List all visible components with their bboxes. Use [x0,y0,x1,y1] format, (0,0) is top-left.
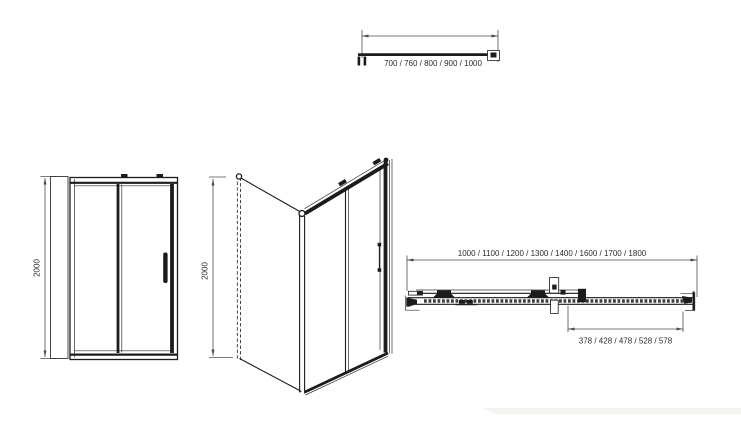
arrow-up-icon [44,178,47,185]
left-wall-profile [406,291,423,310]
roller [372,158,381,165]
door-plan-view: 1000 / 1100 / 1200 / 1300 / 1400 / 1600 … [398,238,705,356]
profile-fill [406,298,417,307]
side-panel-edge [51,177,69,359]
side-panel-plan-view: 700 / 760 / 800 / 900 / 1000 [340,18,520,78]
roller-carriage [433,290,456,298]
door-handle [163,253,167,284]
track-assembly [406,278,695,314]
arrow-right-icon [677,328,684,331]
outer-frame [70,178,178,360]
dimension-lines [362,30,498,62]
end-profile-core [491,53,497,58]
handle-inner [551,300,559,313]
handle-knob [378,243,382,247]
bottom-rail-line [306,356,389,395]
watermark-strip [482,408,741,414]
roller-cover [121,174,163,177]
perspective-view: 2000 [195,145,400,405]
stop-block [561,290,566,295]
roller-carriage [527,290,550,298]
bottom-rail [305,353,388,392]
arrow-down-icon [212,350,215,357]
wall-profile-leg [358,57,361,66]
entry-width-label: 378 / 428 / 478 / 528 / 578 [579,337,673,346]
handle-core [552,285,556,290]
height-label: 2000 [32,259,41,277]
door-frame-front [70,174,178,360]
profile-cap [236,174,241,179]
wall-profile-leg [364,57,367,66]
front-elevation-view: 2000 [25,160,195,375]
arrow-left-icon [407,259,414,262]
technical-drawing-sheet: { "colors": { "line": "#1c1c1c", "dimens… [0,0,741,422]
side-panel-perspective [236,174,301,392]
top-rail [305,164,388,214]
height-dimension: 2000 [200,177,233,358]
arrow-right-icon [691,259,698,262]
stile-cap [384,158,389,163]
handle-knob [378,268,382,272]
sliding-door-perspective [299,158,392,395]
handle-plan [550,278,559,314]
dimension-lines [568,306,683,332]
height-label: 2000 [200,262,209,280]
corner-post-cap [299,211,305,217]
roller [338,179,347,186]
profile-fill [682,296,692,304]
arrow-right-icon [492,35,499,38]
profile-core [417,292,422,295]
glass-face [240,178,302,392]
arrow-down-icon [44,351,47,358]
panel-end-bracket [578,289,586,302]
stile-outer-lines [390,159,393,354]
width-dimension: 700 / 760 / 800 / 900 / 1000 [362,30,498,68]
dimension-lines [209,177,233,358]
arrow-up-icon [212,179,215,186]
entry-width-dimension: 378 / 428 / 478 / 528 / 578 [568,306,683,346]
door-width-label: 1000 / 1100 / 1200 / 1300 / 1400 / 1600 … [458,249,647,258]
arrow-left-icon [568,328,575,331]
side-panel-width-label: 700 / 760 / 800 / 900 / 1000 [384,59,482,68]
arrow-left-icon [362,35,369,38]
